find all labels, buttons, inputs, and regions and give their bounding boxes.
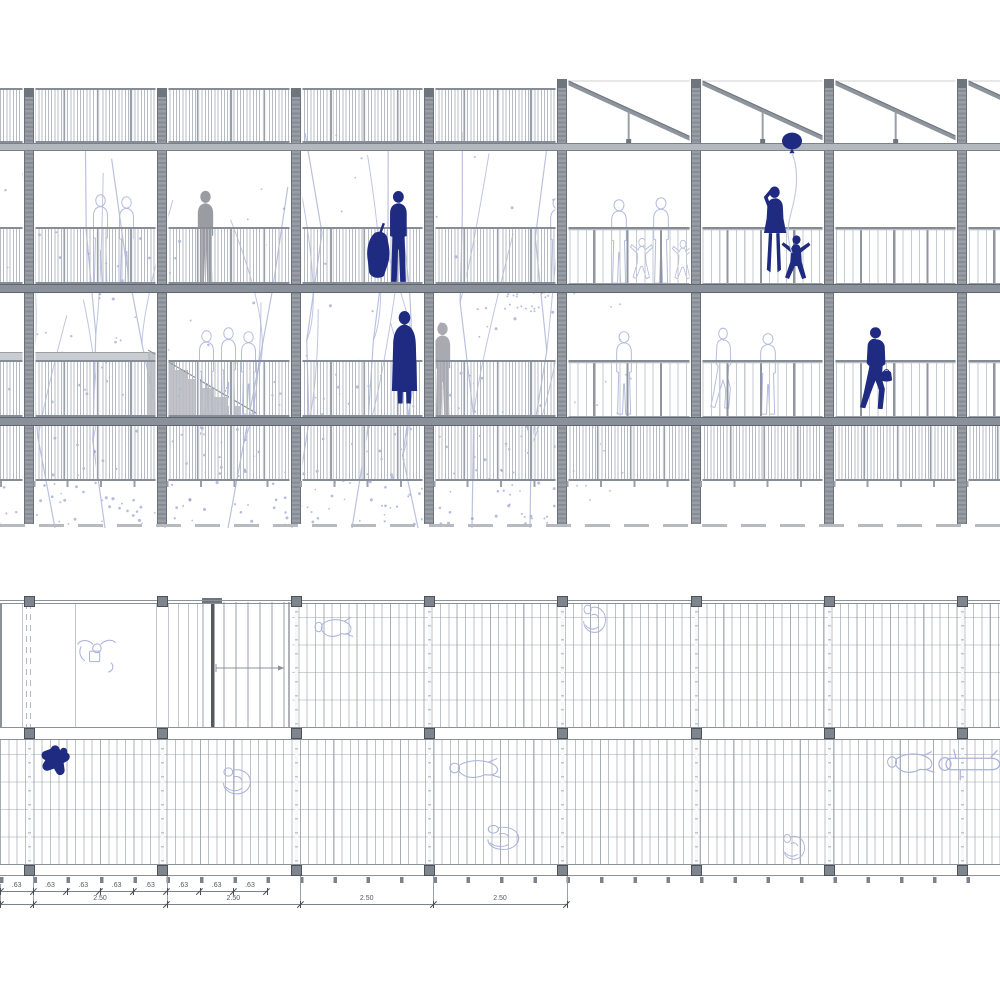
dimension-label: 2.50 bbox=[226, 895, 240, 902]
dimension-label: .63 bbox=[78, 882, 88, 889]
dimension-label: 2.50 bbox=[93, 895, 107, 902]
dimension-label: .63 bbox=[245, 882, 255, 889]
dimension-label: .63 bbox=[145, 882, 155, 889]
architectural-drawing-sheet: .63.63.63.63.63.63.63.632.502.502.502.50 bbox=[0, 0, 1000, 1000]
dimension-label: .63 bbox=[178, 882, 188, 889]
dimension-label: .63 bbox=[45, 882, 55, 889]
dimension-label: 2.50 bbox=[360, 895, 374, 902]
dimension-label: 2.50 bbox=[493, 895, 507, 902]
dimension-label: .63 bbox=[212, 882, 222, 889]
dimension-label: .63 bbox=[112, 882, 122, 889]
dim-line-250 bbox=[0, 904, 568, 905]
dimension-label: .63 bbox=[12, 882, 22, 889]
dimension-strings: .63.63.63.63.63.63.63.632.502.502.502.50 bbox=[0, 0, 1000, 1000]
